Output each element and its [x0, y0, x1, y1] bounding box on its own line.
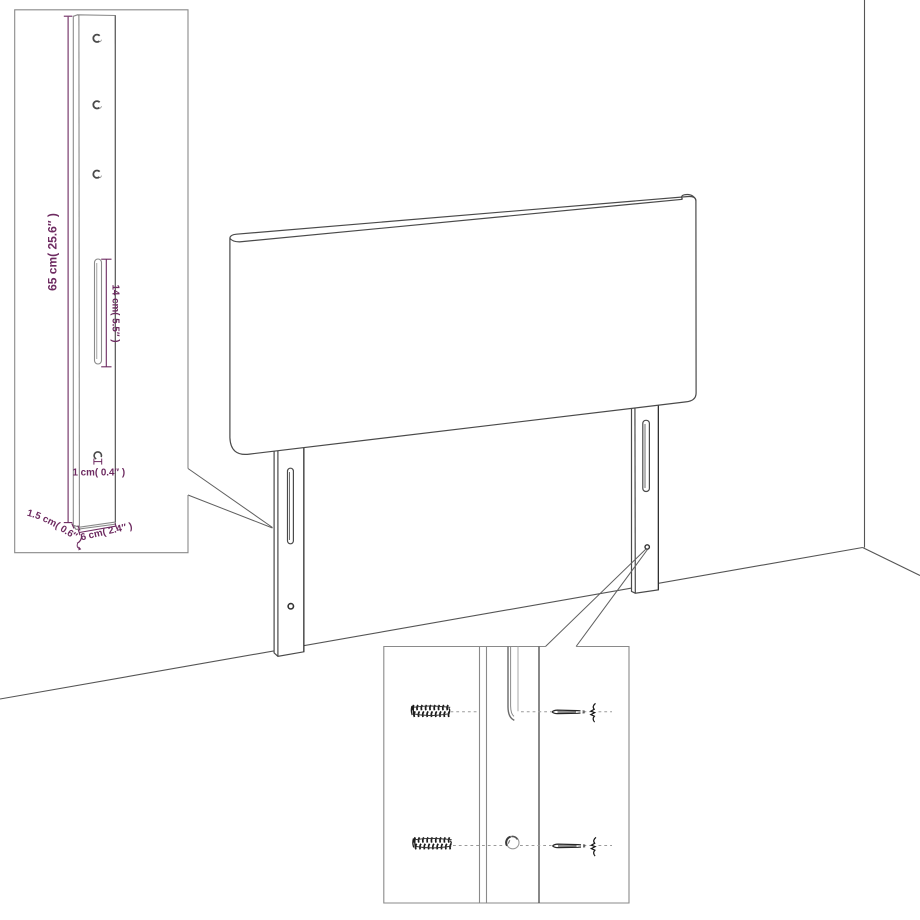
svg-text:14 cm( 5.5″ ): 14 cm( 5.5″ )	[109, 284, 120, 342]
svg-text:65 cm( 25.6″ ): 65 cm( 25.6″ )	[46, 213, 60, 291]
svg-text:1 cm( 0.4″ ): 1 cm( 0.4″ )	[73, 468, 126, 479]
